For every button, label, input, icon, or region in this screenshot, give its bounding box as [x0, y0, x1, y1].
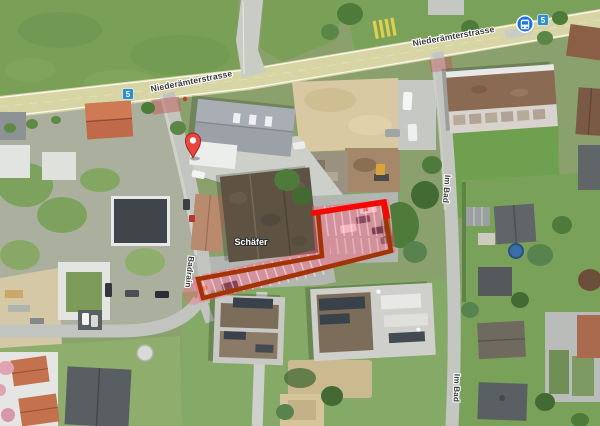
- apartment-north-east: [442, 61, 558, 134]
- poi-label-schaefer: Schäfer: [234, 237, 268, 247]
- route-shield-1: 5: [123, 89, 134, 100]
- schaefer-dark-hall: [216, 165, 319, 262]
- svg-text:5: 5: [126, 90, 131, 99]
- map-canvas[interactable]: Niederämterstrasse Niederämterstrasse Ba…: [0, 0, 600, 426]
- bus-stop-icon[interactable]: [517, 16, 533, 32]
- map-viewport[interactable]: Niederämterstrasse Niederämterstrasse Ba…: [0, 0, 600, 426]
- apartment-south-east: [305, 281, 436, 362]
- svg-text:5: 5: [541, 16, 546, 25]
- route-shield-2: 5: [538, 15, 549, 26]
- trampoline: [509, 244, 523, 258]
- street-label-im-bad-lower: Im Bad: [452, 374, 462, 403]
- apartment-south-west: [208, 293, 285, 366]
- house-orange-roof: [85, 100, 133, 139]
